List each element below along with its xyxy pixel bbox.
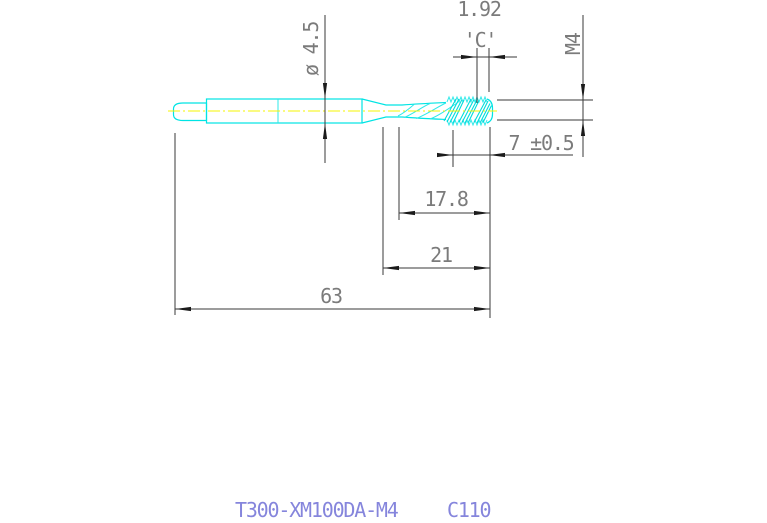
dim-tip-width-text: 1.92	[457, 0, 501, 21]
dim-shank-diameter: ø 4.5	[299, 15, 327, 163]
part-number-text: T300-XM100DA-M4	[235, 498, 399, 522]
dim-front-length-text: 21	[430, 243, 452, 267]
dim-thread-length-text: 7 ±0.5	[508, 131, 573, 155]
dim-flute-length: 17.8	[399, 127, 490, 220]
dim-thread-spec-text: M4	[561, 32, 585, 55]
technical-drawing: ø 4.5 1.92 'C' M4 7 ±0.5 17.8	[0, 0, 767, 523]
dim-tip-width: 1.92 'C'	[453, 0, 517, 103]
dim-shank-diameter-text: ø 4.5	[299, 22, 323, 76]
dim-chamfer-text: 'C'	[464, 28, 497, 52]
dim-flute-length-text: 17.8	[424, 187, 468, 211]
drawing-canvas: ø 4.5 1.92 'C' M4 7 ±0.5 17.8	[0, 0, 767, 523]
square-drive-end	[174, 103, 207, 121]
title-block: T300-XM100DA-M4 C110	[235, 498, 491, 522]
part-code-text: C110	[447, 498, 491, 522]
dim-overall-length-text: 63	[320, 284, 342, 308]
taper-neck-top	[362, 99, 446, 105]
dim-thread-length: 7 ±0.5	[437, 130, 574, 167]
tap-geometry	[168, 97, 497, 125]
